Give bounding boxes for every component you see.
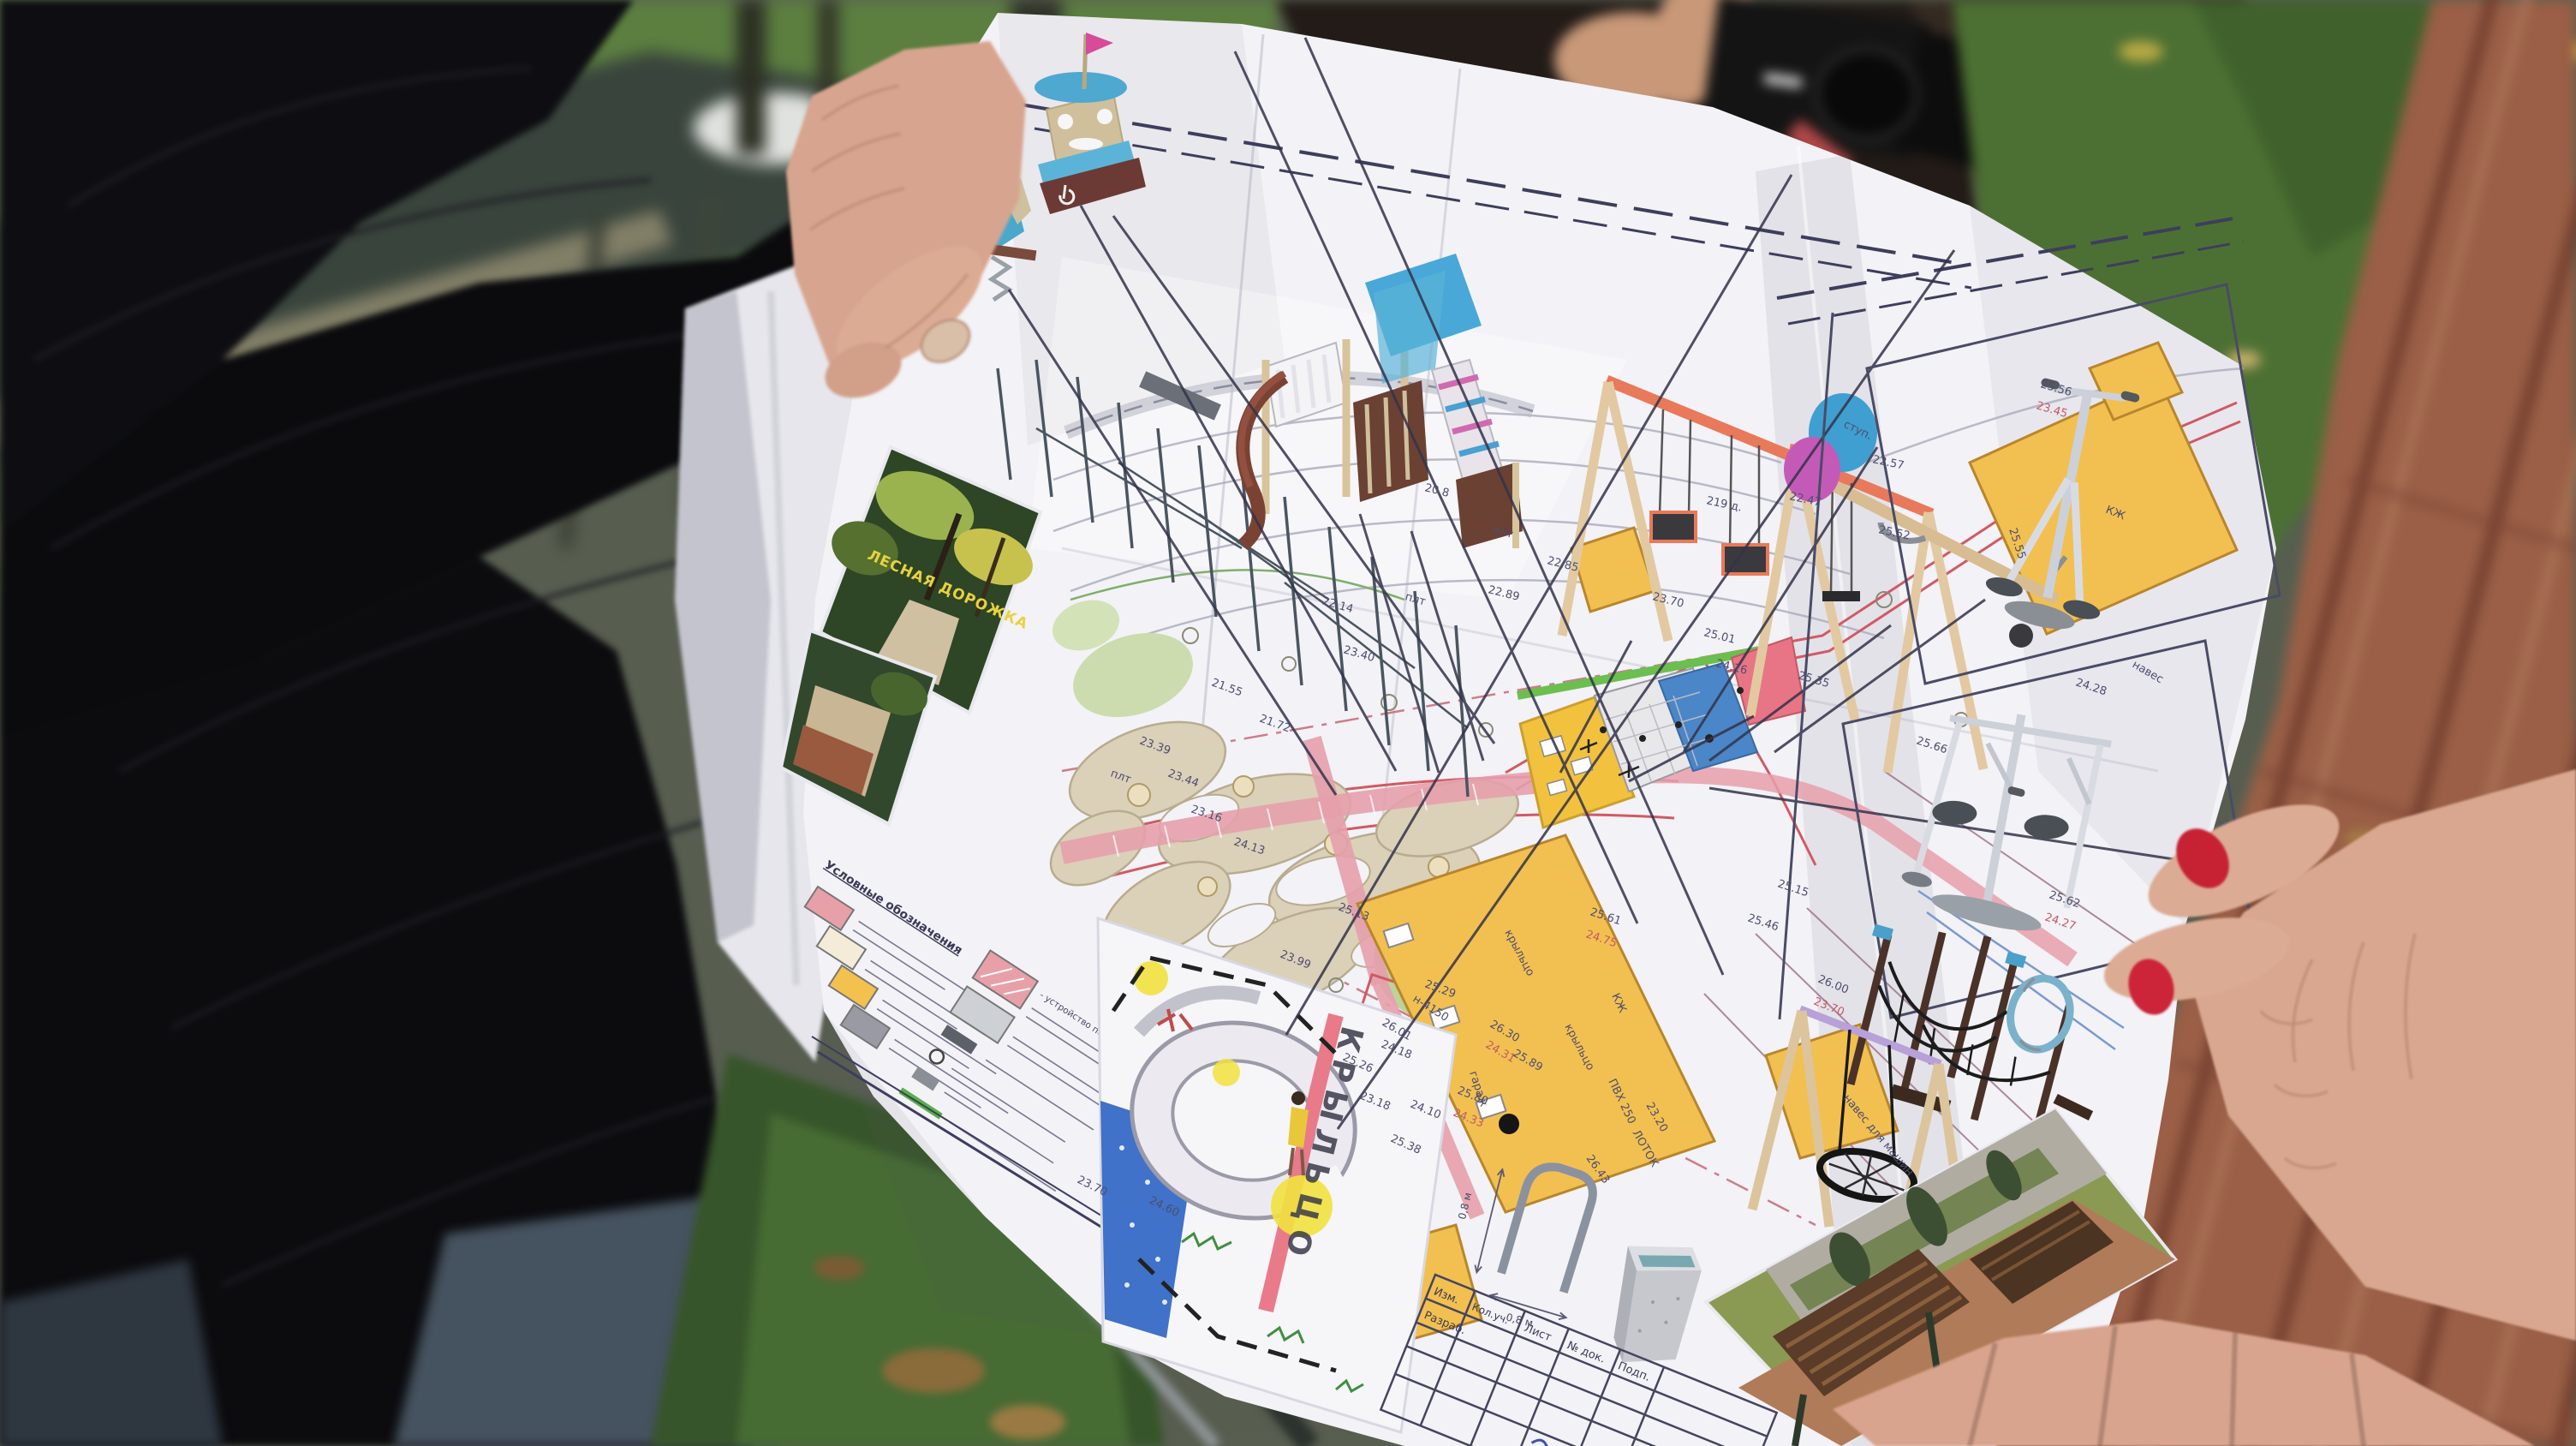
photo-scene: ЛЕСНАЯ ДОРОЖКА Условные обозначения - [0, 0, 2576, 1446]
scene-canvas: ЛЕСНАЯ ДОРОЖКА Условные обозначения - [0, 0, 2576, 1446]
